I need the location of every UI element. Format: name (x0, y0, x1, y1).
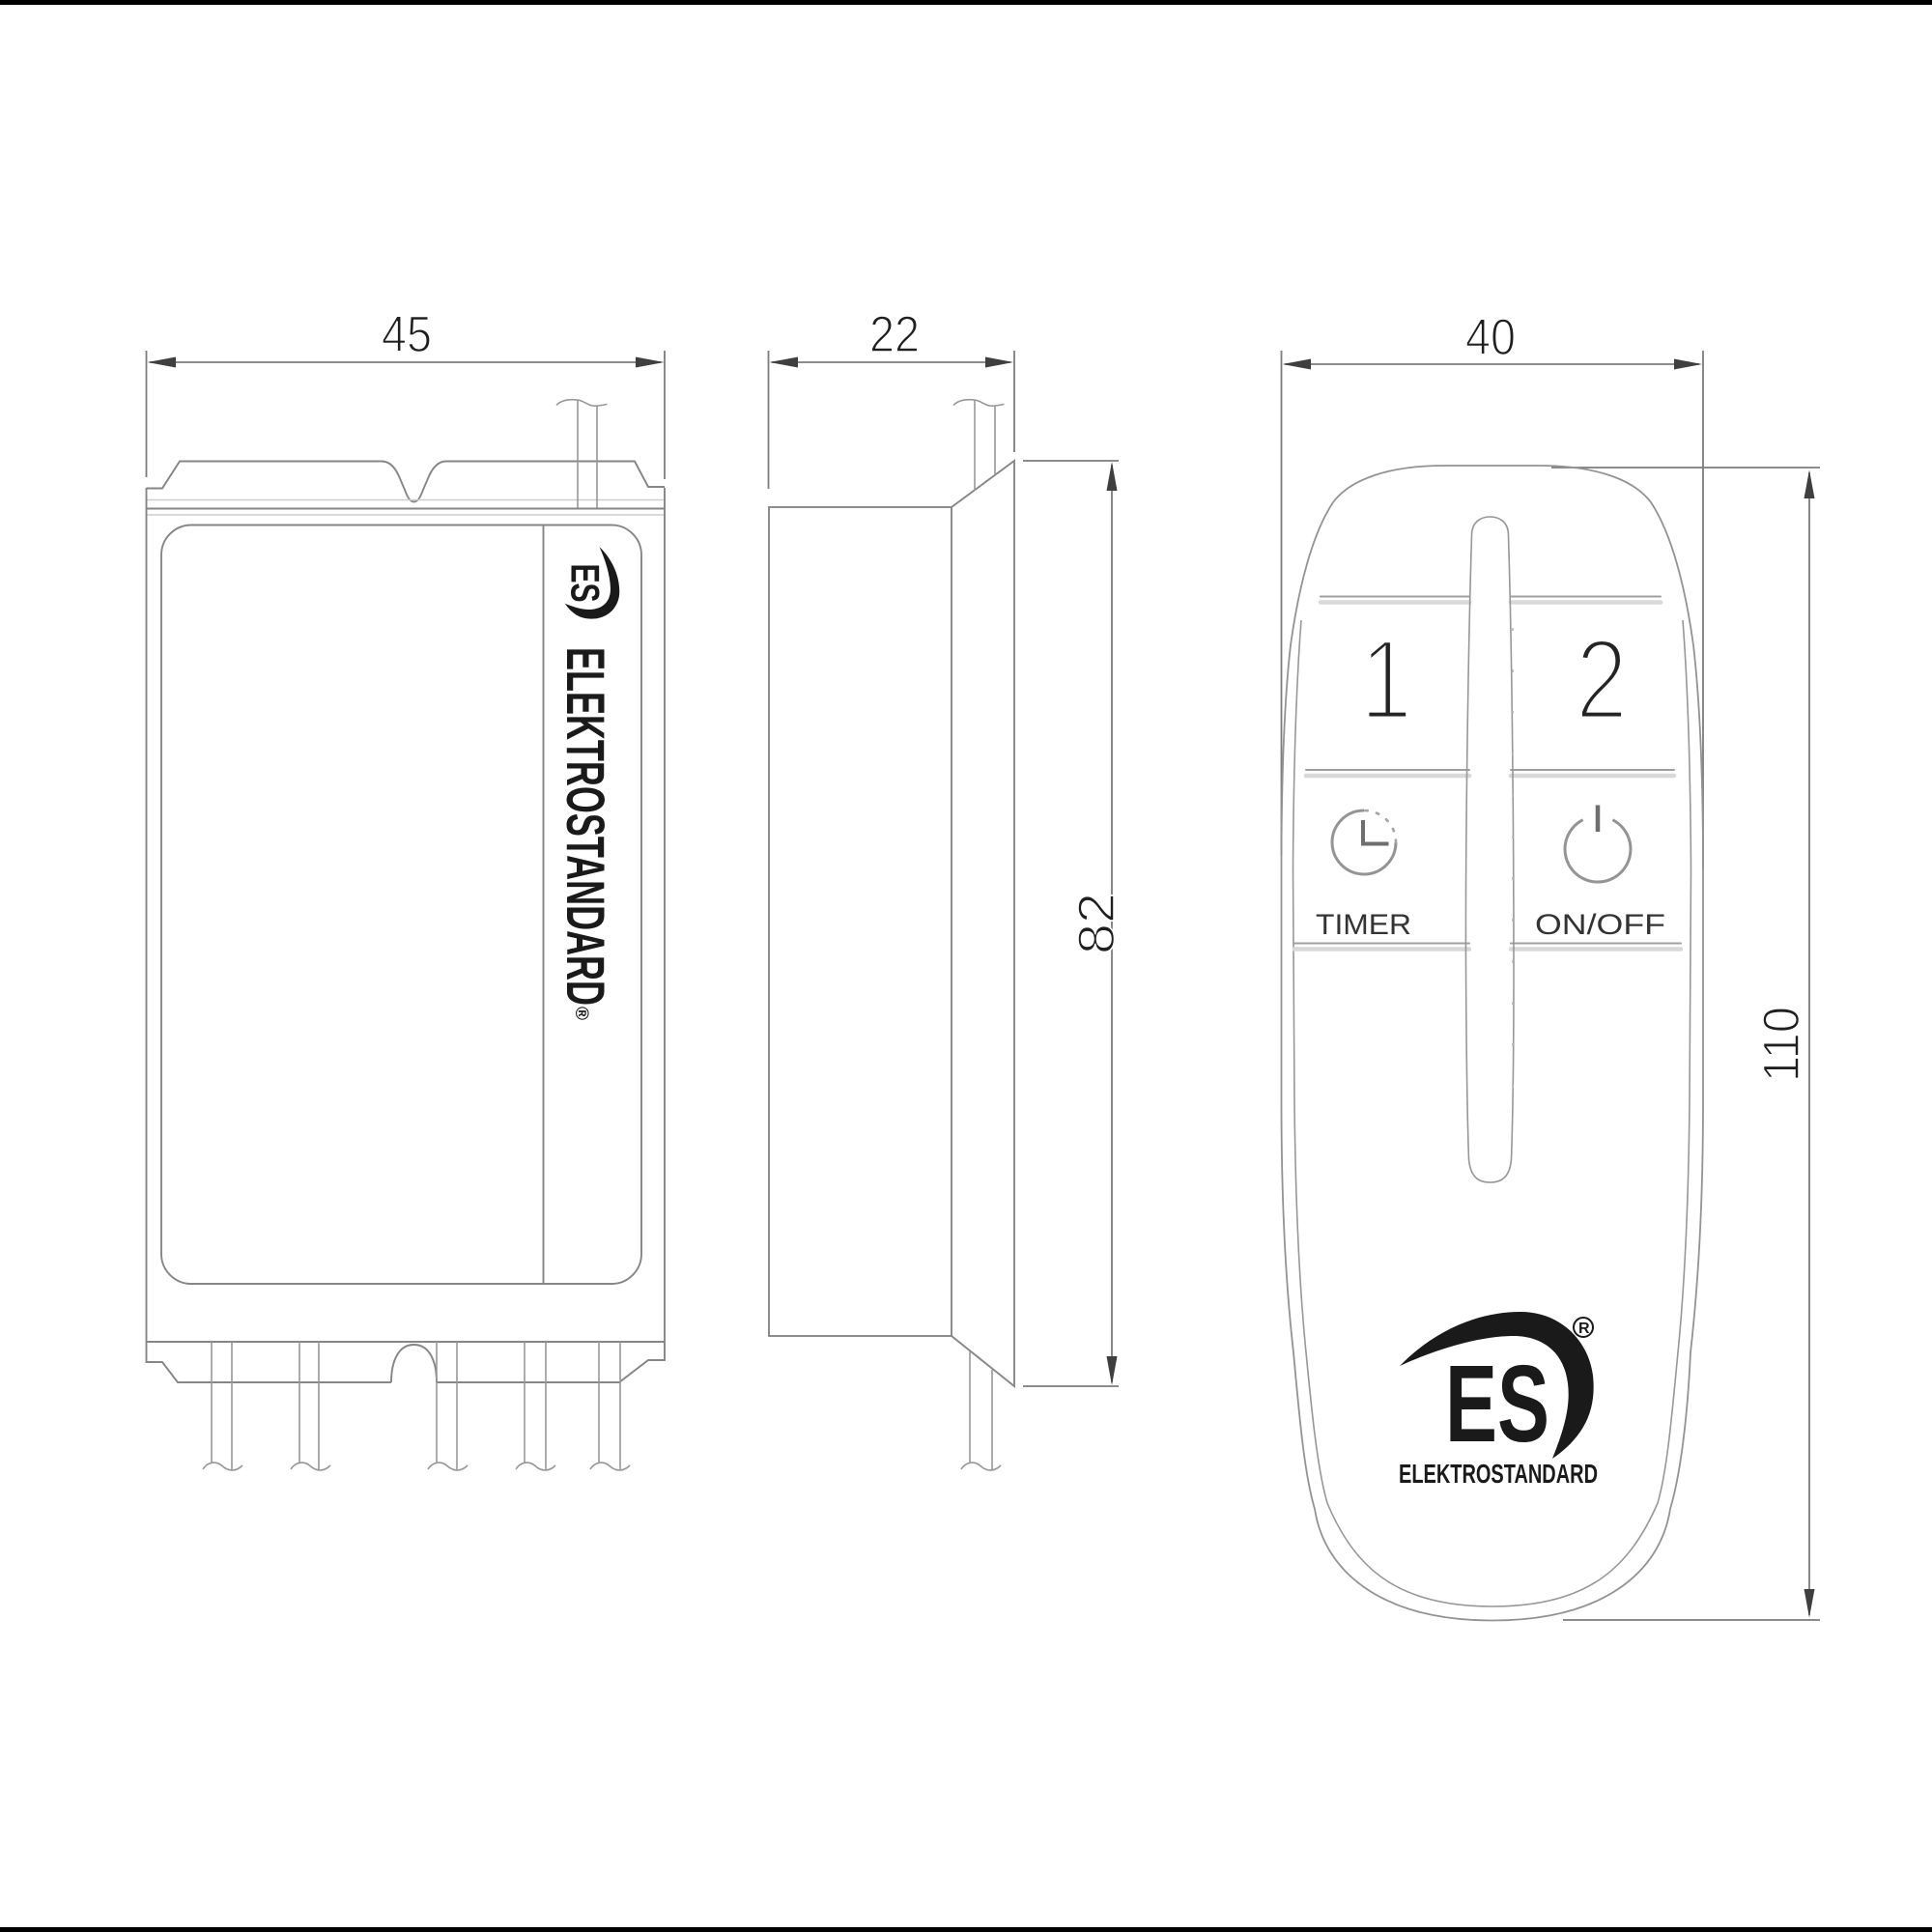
svg-text:1: 1 (1360, 616, 1412, 744)
svg-text:22: 22 (869, 306, 920, 363)
svg-text:110: 110 (1753, 1007, 1810, 1082)
svg-text:ELEKTROSTANDARD: ELEKTROSTANDARD (555, 647, 616, 1006)
svg-text:ON/OFF: ON/OFF (1535, 909, 1665, 941)
svg-text:40: 40 (1465, 309, 1516, 366)
svg-text:82: 82 (1068, 893, 1125, 954)
svg-text:®: ® (571, 1007, 591, 1020)
svg-text:2: 2 (1576, 616, 1628, 744)
svg-text:ELEKTROSTANDARD: ELEKTROSTANDARD (1399, 1459, 1598, 1489)
svg-text:TIMER: TIMER (1316, 909, 1411, 941)
svg-text:R: R (1578, 1321, 1590, 1337)
svg-text:45: 45 (382, 306, 432, 363)
